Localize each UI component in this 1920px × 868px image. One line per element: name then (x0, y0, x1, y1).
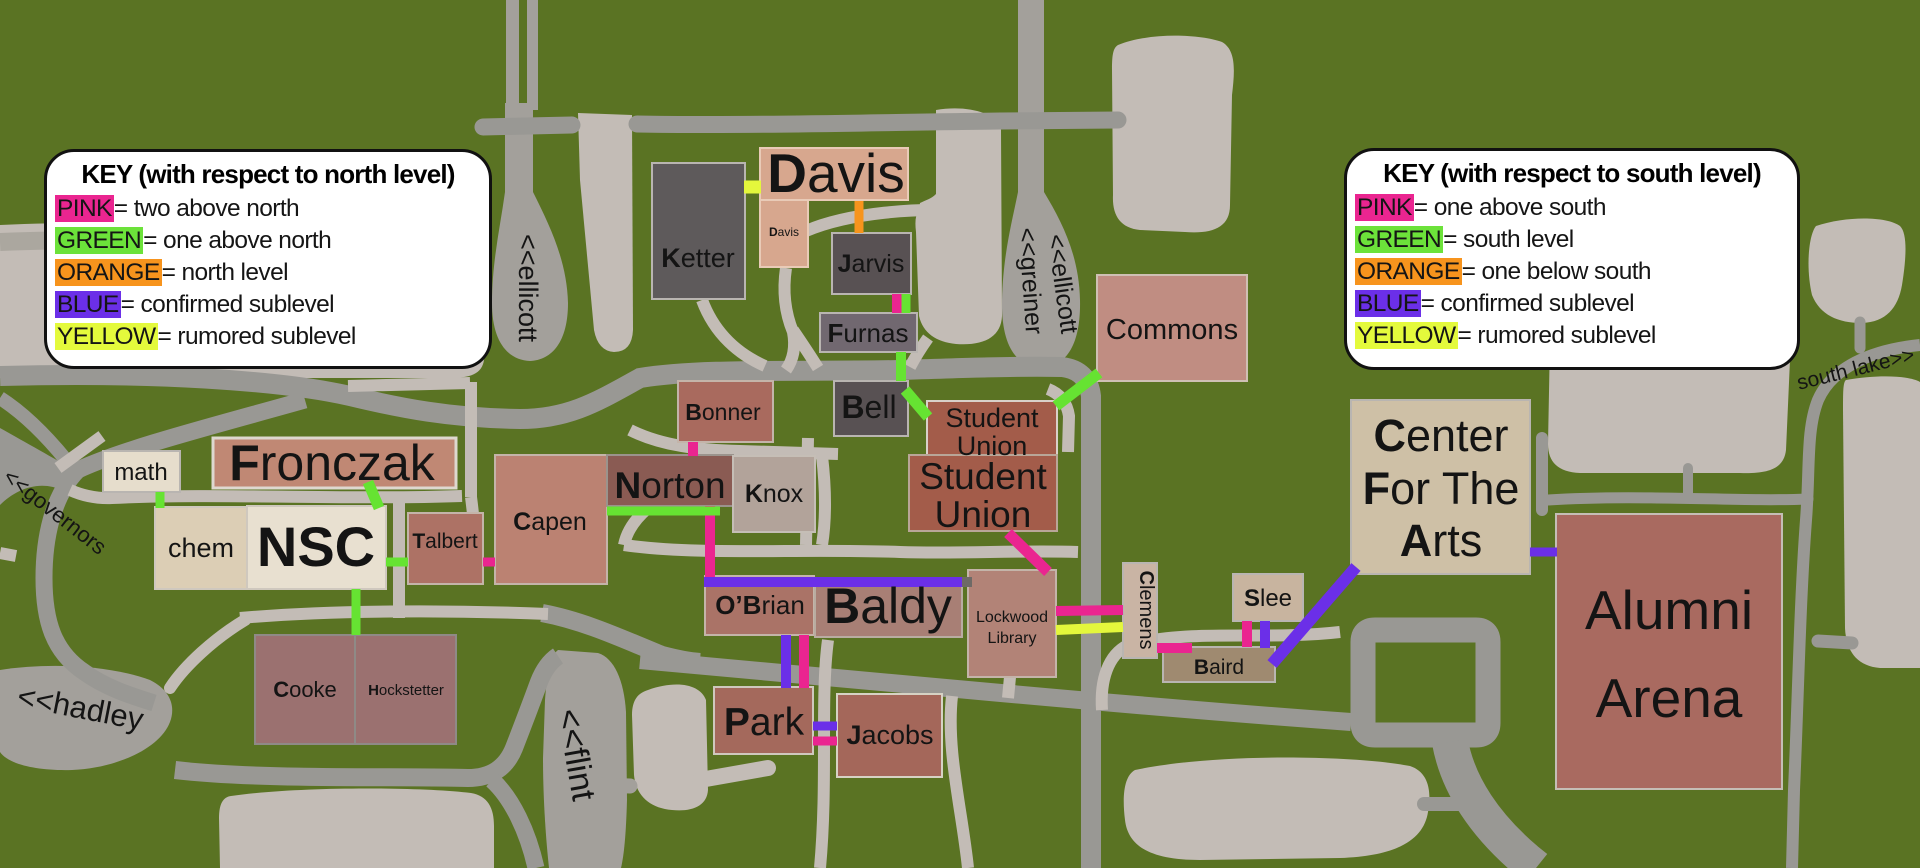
svg-text:Union: Union (935, 494, 1032, 535)
svg-text:Knox: Knox (745, 480, 804, 508)
svg-text:Arts: Arts (1400, 515, 1483, 566)
svg-text:Bonner: Bonner (685, 399, 761, 425)
svg-text:Davis: Davis (769, 225, 799, 239)
svg-text:Alumni: Alumni (1585, 579, 1753, 641)
svg-text:Capen: Capen (513, 508, 587, 536)
svg-text:Davis: Davis (767, 142, 905, 204)
svg-text:<<ellicott: <<ellicott (513, 234, 543, 343)
svg-text:Arena: Arena (1596, 667, 1743, 729)
svg-text:Fronczak: Fronczak (229, 435, 436, 491)
svg-text:Jarvis: Jarvis (838, 250, 905, 278)
svg-text:Student: Student (919, 456, 1047, 497)
svg-text:Baldy: Baldy (824, 578, 952, 634)
svg-text:Jacobs: Jacobs (846, 720, 933, 750)
svg-text:chem: chem (168, 533, 234, 563)
svg-text:O’Brian: O’Brian (715, 590, 805, 620)
svg-text:Center: Center (1373, 410, 1508, 461)
svg-text:Ketter: Ketter (661, 243, 735, 273)
svg-text:Clemens: Clemens (1135, 571, 1157, 650)
svg-text:Park: Park (724, 701, 805, 744)
svg-text:Norton: Norton (614, 465, 725, 506)
svg-text:Commons: Commons (1106, 314, 1238, 346)
svg-text:Furnas: Furnas (828, 318, 909, 348)
svg-text:NSC: NSC (257, 515, 375, 578)
svg-text:Student: Student (945, 403, 1039, 433)
svg-text:Library: Library (988, 630, 1037, 647)
svg-text:For The: For The (1363, 463, 1520, 514)
svg-text:Cooke: Cooke (273, 677, 337, 702)
svg-text:Slee: Slee (1244, 585, 1292, 612)
svg-text:Lockwood: Lockwood (976, 609, 1048, 626)
svg-text:math: math (114, 459, 167, 486)
svg-text:Baird: Baird (1194, 656, 1244, 679)
svg-text:Talbert: Talbert (412, 530, 478, 553)
svg-text:Hockstetter: Hockstetter (368, 682, 444, 699)
svg-text:Bell: Bell (841, 389, 896, 425)
